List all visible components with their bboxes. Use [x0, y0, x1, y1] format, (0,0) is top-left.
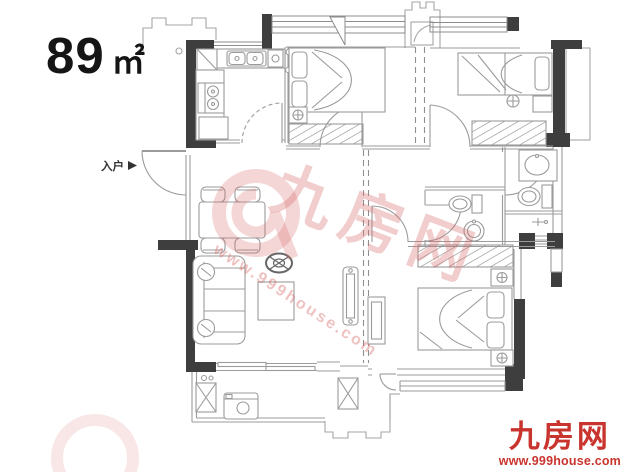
column [338, 378, 358, 409]
toilet [449, 195, 482, 213]
bedroom-northeast-window [430, 17, 507, 32]
dining-table [199, 202, 265, 238]
dining-chair [201, 238, 225, 253]
toilet [518, 185, 552, 208]
dining-chair [235, 187, 260, 202]
bedroom-north-window [272, 16, 405, 45]
kitchen-door [242, 103, 282, 143]
site-logo: 九房网 www.999house.com [499, 421, 621, 468]
nightstand [533, 96, 552, 112]
single-bed [458, 53, 552, 95]
small-basin [268, 50, 283, 67]
area-unit: ㎡ [112, 45, 145, 78]
kitchen-sink [227, 51, 266, 66]
kitchen [196, 49, 285, 140]
floorplan-page: 入户 89 ㎡ 九房网 www.999house.com 九房网 www.999… [0, 0, 625, 472]
nightstand [491, 350, 513, 366]
bedroom-northeast-door [430, 105, 470, 147]
tv-stand [343, 267, 358, 325]
balcony-small-door [380, 374, 396, 390]
ceiling-lamp [266, 254, 292, 273]
lower-cabinet [199, 117, 228, 139]
dining-chair [201, 187, 225, 202]
wardrobe [472, 121, 546, 145]
living-room [193, 254, 358, 345]
wardrobe [418, 245, 513, 267]
bathroom-middle [449, 195, 484, 241]
entrance-arrow-icon [128, 161, 137, 170]
balcony [196, 376, 358, 420]
entry-door [142, 151, 186, 195]
laundry-sink [196, 376, 216, 413]
wardrobe [289, 124, 363, 144]
double-bed [289, 48, 385, 112]
fridge [197, 49, 217, 70]
washing-machine [224, 393, 258, 419]
double-bed [418, 288, 512, 350]
window-flag [330, 17, 345, 45]
bedroom-north [289, 48, 385, 144]
kitchen-window [214, 42, 262, 49]
nightstand [491, 269, 513, 286]
entrance: 入户 [101, 159, 137, 173]
bedroom-south [368, 245, 513, 366]
bottom-keystone [325, 421, 390, 438]
round-basin [464, 220, 484, 241]
tv-cabinet [368, 297, 385, 344]
watermark-fragment [57, 420, 133, 472]
bathroom-north [518, 150, 557, 208]
dining-chair [235, 238, 260, 253]
right-bay-strip [566, 48, 590, 140]
stove [198, 83, 224, 113]
coffee-table [258, 282, 294, 320]
site-logo-brand: 九房网 [499, 421, 621, 452]
area-label: 89 ㎡ [46, 30, 145, 81]
bedroom-south-door [372, 206, 408, 242]
sofa [193, 256, 245, 344]
area-value: 89 [46, 30, 105, 81]
wall-node [176, 48, 182, 54]
nightstand [289, 107, 307, 123]
entrance-label: 入户 [101, 159, 124, 173]
site-logo-url: www.999house.com [499, 454, 621, 468]
bedroom-northeast [458, 53, 552, 145]
top-middle-column [405, 2, 440, 48]
plant [507, 95, 519, 107]
windows [214, 16, 507, 49]
dining-area [199, 187, 265, 253]
